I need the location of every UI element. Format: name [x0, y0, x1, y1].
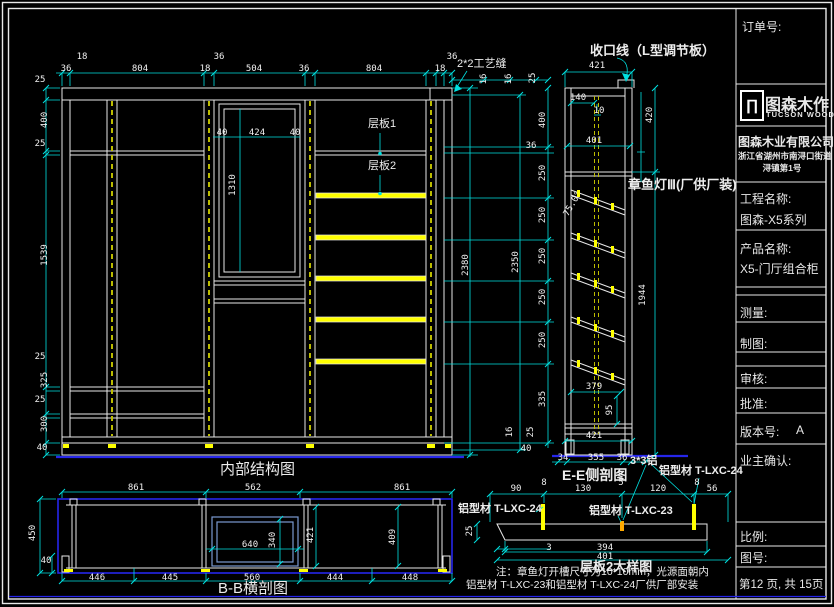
note-line-1: 注：章鱼灯开槽尺寸为10*10mm，光源面朝内	[496, 567, 709, 579]
dimension-label: 25	[465, 526, 475, 537]
dimension-label: 250	[538, 165, 548, 181]
order-number-label: 订单号:	[742, 18, 781, 35]
drawing-sheet: 1836804183650436804183625400251539253252…	[0, 0, 834, 607]
shelf2-label: 层板2	[368, 160, 396, 172]
alu-profile-24-right-label: 铝型材 T-LXC-24	[659, 465, 743, 477]
note-line-2: 铝型材 T-LXC-23和铝型材 T-LXC-24厂供厂部安装	[466, 580, 698, 592]
dimension-label: 36	[526, 141, 537, 151]
dimension-label: 340	[268, 532, 278, 548]
dimension-label: 56	[707, 484, 718, 494]
dimension-label: 140	[570, 93, 586, 103]
dimension-label: 130	[575, 484, 591, 494]
version-label: 版本号:	[740, 423, 779, 440]
dimension-label: 40	[217, 128, 228, 138]
dimension-label: 562	[245, 483, 261, 493]
dimension-label: 36	[299, 64, 310, 74]
dimension-label: 25	[35, 75, 46, 85]
shelf1-label: 层板1	[368, 118, 396, 130]
owner-confirm-label: 业主确认:	[740, 452, 791, 469]
dimension-label: 420	[645, 107, 655, 123]
dimension-label: 409	[388, 529, 398, 545]
dimension-label: 421	[306, 527, 316, 543]
company-address-1: 浙江省湖州市南浔口街道	[738, 150, 826, 162]
dimension-label: 804	[132, 64, 148, 74]
dimension-label: 36	[61, 64, 72, 74]
dimension-label: 36	[214, 52, 225, 62]
approve-label: 批准:	[740, 395, 767, 412]
dimension-label: 445	[162, 573, 178, 583]
dimension-label: 2350	[511, 251, 521, 273]
dimension-label: 40	[521, 444, 532, 454]
highlighted-shelves	[316, 193, 426, 364]
dimension-label: 16	[479, 74, 489, 85]
dimension-label: 18	[77, 52, 88, 62]
product-name-label: 产品名称:	[740, 240, 791, 257]
dimension-label: 16	[505, 427, 515, 438]
dimension-label: 120	[650, 484, 666, 494]
alu-33-label: 3*3铝	[630, 455, 658, 467]
section-view-title: B-B横剖图	[218, 581, 288, 598]
dimension-label: 448	[402, 573, 418, 583]
middle-clip	[620, 521, 624, 531]
leader-arrows	[378, 73, 630, 195]
alu-profile-24-left-label: 铝型材 T-LXC-24	[458, 503, 542, 515]
logo-subtext: TUCSON WOOD	[766, 110, 834, 119]
tucson-logo-icon: ∏	[740, 90, 764, 121]
review-label: 审核:	[740, 370, 767, 387]
dimension-label: 40	[290, 128, 301, 138]
dimension-label: 90	[511, 484, 522, 494]
dimension-label: 640	[242, 540, 258, 550]
dimension-label: 8	[694, 478, 699, 488]
dimension-label: 355	[588, 453, 604, 463]
dimension-label: 250	[538, 332, 548, 348]
dimension-label: 25	[528, 73, 538, 84]
trim-label: 收口线（L型调节板）	[590, 44, 715, 58]
dimension-label: 95	[605, 405, 615, 416]
company-name: 图森木业有限公司	[738, 133, 834, 150]
draft-label: 制图:	[740, 335, 767, 352]
drawing-number-label: 图号:	[740, 549, 767, 566]
dimension-label: 400	[538, 112, 548, 128]
version-value: A	[796, 423, 804, 437]
front-view-title: 内部结构图	[220, 462, 295, 479]
dimension-label: 40	[37, 443, 48, 453]
dimension-label: 444	[327, 573, 343, 583]
dimension-label: 300	[40, 416, 50, 432]
dimension-label: 34	[558, 453, 569, 463]
dimension-label: 421	[586, 431, 602, 441]
side-view-title: E-E侧剖图	[562, 468, 627, 483]
dimension-label: 401	[586, 136, 602, 146]
dimension-label: 424	[249, 128, 265, 138]
scale-label: 比例:	[740, 528, 767, 545]
lamp-label: 章鱼灯Ⅲ(厂供厂装)	[628, 178, 737, 192]
dimension-label: 25	[35, 395, 46, 405]
dimension-label: 3	[546, 543, 551, 553]
dimension-label: 335	[538, 391, 548, 407]
project-name-value: 图森-X5系列	[740, 211, 807, 228]
dimension-label: 10	[594, 106, 605, 116]
dimension-label: 379	[586, 382, 602, 392]
detail-view-linework	[497, 524, 707, 540]
dimension-label: 421	[589, 61, 605, 71]
dimension-label: 2380	[461, 254, 471, 276]
dimension-label: 8	[541, 478, 546, 488]
dimension-label: 400	[40, 112, 50, 128]
logo-glyph: ∏	[746, 97, 758, 114]
dimension-label: 25	[35, 352, 46, 362]
sheet-border	[3, 3, 832, 604]
dimension-label: 36	[617, 453, 628, 463]
dimension-label: 446	[89, 573, 105, 583]
dimension-label: 1944	[638, 284, 648, 306]
dimension-label: 18	[435, 64, 446, 74]
dimension-label: 25	[526, 427, 536, 438]
dimension-label: 504	[246, 64, 262, 74]
product-name-value: X5-门厅组合柜	[740, 260, 819, 277]
dimension-label: 250	[538, 248, 548, 264]
dimension-label: 804	[366, 64, 382, 74]
dimension-label: 40	[41, 556, 52, 566]
dimension-label: 16	[504, 74, 514, 85]
dimension-label: 1539	[40, 244, 50, 266]
company-address-2: 浔镇第1号	[738, 162, 826, 174]
dimension-label: 1310	[228, 174, 238, 196]
dimension-label: 450	[28, 525, 38, 541]
measure-label: 测量:	[740, 304, 767, 321]
seam-label: 2*2工艺缝	[457, 58, 507, 70]
dimension-label: 861	[394, 483, 410, 493]
page-info: 第12 页, 共 15页	[739, 576, 823, 592]
dimension-label: 325	[40, 372, 50, 388]
project-name-label: 工程名称:	[740, 190, 791, 207]
alu-profile-23-label: 铝型材 T-LXC-23	[589, 505, 673, 517]
dimension-label: 25	[35, 139, 46, 149]
dimension-label: 861	[128, 483, 144, 493]
dimension-label: 36	[447, 52, 458, 62]
dimension-label: 18	[200, 64, 211, 74]
front-view-linework	[62, 88, 452, 455]
cad-linework	[0, 0, 834, 607]
dimension-label: 250	[538, 207, 548, 223]
dimension-label: 250	[538, 289, 548, 305]
